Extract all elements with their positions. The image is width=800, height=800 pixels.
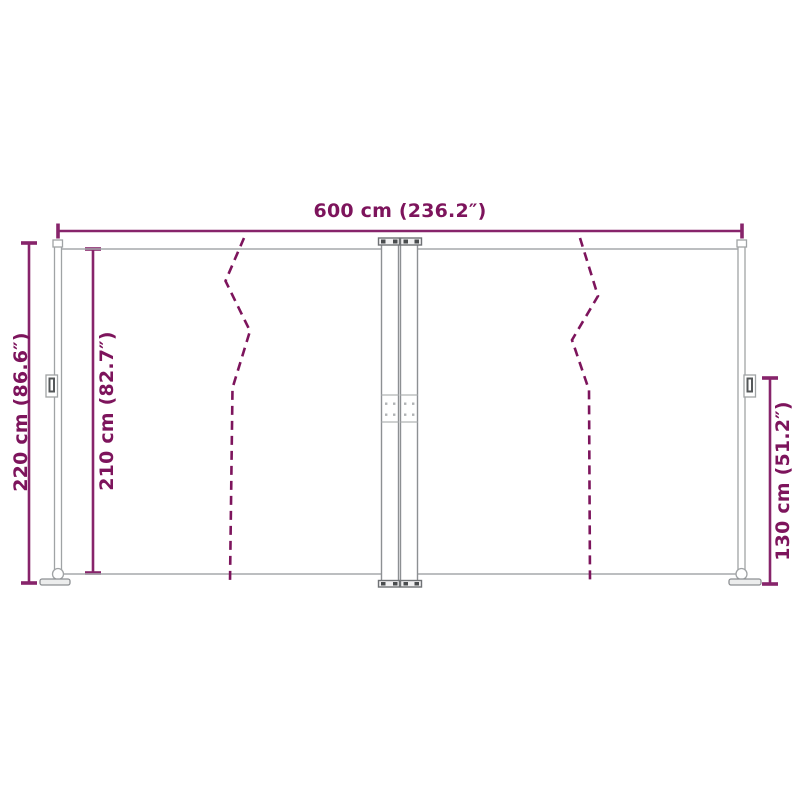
- dimension-label-right-height: 130 cm (51.2″): [772, 401, 794, 561]
- left-handle: [46, 375, 58, 397]
- center-cassette: [379, 238, 422, 587]
- dimension-label-total-height: 220 cm (86.6″): [10, 332, 32, 492]
- left-fold-line: [226, 238, 251, 582]
- dimension-lines: [21, 224, 778, 585]
- fabric-panel-outline: [61, 249, 738, 574]
- dimension-label-width: 600 cm (236.2″): [314, 200, 487, 222]
- diagram-drawing: [0, 0, 800, 800]
- cassette-bottom-feet: [379, 581, 422, 588]
- left-foot-plate: [40, 579, 70, 585]
- left-post: [40, 240, 70, 585]
- product-dimension-diagram: 600 cm (236.2″) 220 cm (86.6″) 210 cm (8…: [0, 0, 800, 800]
- dimension-label-fabric-height: 210 cm (82.7″): [96, 331, 118, 491]
- cassette-top-caps: [379, 238, 422, 245]
- right-post: [729, 240, 761, 585]
- right-foot-plate: [729, 579, 761, 585]
- dimension-line-width: [58, 224, 742, 239]
- right-fold-line: [572, 238, 598, 582]
- right-handle: [744, 375, 756, 397]
